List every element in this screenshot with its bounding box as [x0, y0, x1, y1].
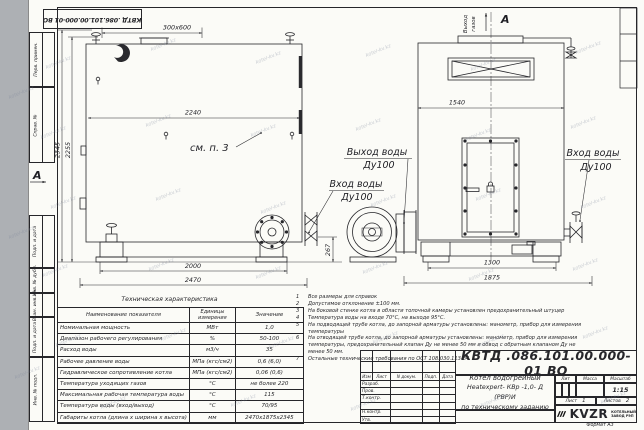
rev-col-doc: N докум. [391, 373, 423, 381]
empty-cell [391, 409, 423, 416]
spec-units: м3/ч [189, 345, 235, 356]
product-line2: Heatexpert- КВр -1,0- Д (РВР)И [456, 383, 554, 403]
empty-cell [423, 362, 440, 373]
margin-box: Справ. № [29, 87, 55, 163]
empty-cell [423, 381, 440, 388]
spec-units: мм [189, 412, 235, 423]
mass-cell [576, 383, 604, 397]
format-label: Формат А3 [558, 423, 642, 430]
note-item: 4Температура воды на входе 70°С, на выхо… [296, 315, 592, 322]
empty-cell [373, 362, 391, 373]
note-number: 1 [296, 294, 308, 301]
rev-row-label: Пров. [361, 388, 391, 395]
title-block-product: Котел водогрейный Heatexpert- КВр -1,0- … [455, 375, 555, 410]
spec-value: 2470х1875х2345 [235, 412, 303, 423]
company-logo: KVZR КОТЕЛЬНЫЙ ЗАВОД РЭП [555, 405, 637, 423]
lit-header: Лит [555, 375, 576, 383]
note-text: На подводящей трубе котла, до запорной а… [308, 322, 592, 336]
note-text: Все размеры для справок [308, 294, 592, 301]
empty-cell [361, 351, 373, 362]
margin-box: Подп. и дата [29, 215, 55, 268]
spec-units: °С [189, 390, 235, 401]
empty-cell [391, 416, 423, 423]
note-item: 5На подводящей трубе котла, до запорной … [296, 322, 592, 336]
kvzr-logo-icon [556, 407, 567, 421]
sheets-label: Листов [604, 399, 621, 404]
logo-sub2: ЗАВОД РЭП [611, 414, 634, 418]
scale-header: Масштаб [604, 375, 637, 383]
lit-cell [569, 383, 576, 397]
margin-box: Инв. № подл. [29, 357, 55, 422]
spec-value: не более 220 [235, 378, 303, 389]
empty-cell [423, 409, 440, 416]
lit-cell [562, 383, 569, 397]
empty-cell [391, 362, 423, 373]
spec-value: 115 [235, 390, 303, 401]
logo-text: KVZR [570, 407, 609, 421]
rev-col-data: Дата [440, 373, 456, 381]
spec-value: 1,0 [235, 323, 303, 334]
spec-units: % [189, 334, 235, 345]
rev-col-list: Лист [373, 373, 391, 381]
spec-units: МПа (кгс/см2) [189, 367, 235, 378]
margin-box: Перв. примен. [29, 32, 55, 87]
note-text: На боковой стенке котла в области топочн… [308, 308, 592, 315]
spec-value: 0,06 (0,6) [235, 367, 303, 378]
rev-row-label: Т.контр. [361, 395, 391, 402]
empty-cell [391, 388, 423, 395]
empty-cell [440, 388, 456, 395]
scale-value: 1:15 [604, 383, 637, 397]
spec-value: 70/95 [235, 401, 303, 412]
empty-cell [440, 381, 456, 388]
note-text: Температура воды на входе 70°С, на выход… [308, 315, 592, 322]
empty-cell [440, 416, 456, 423]
spec-name: Рабочее давление воды [58, 356, 190, 367]
spec-name: Габариты котла (длина х ширина х высота) [58, 412, 190, 423]
empty-cell [361, 362, 373, 373]
margin-label: Подп. и дата [34, 321, 39, 352]
empty-cell [455, 410, 555, 423]
empty-cell [423, 395, 440, 402]
sheet-cell: Лист 1 [555, 397, 596, 405]
top-doc-number: КВТД .086.101.00.000-01 ВО [43, 16, 141, 23]
empty-cell [423, 388, 440, 395]
revision-table: Изм Лист N докум. Подп. Дата Разраб. Про… [360, 350, 456, 424]
margin-label: Перв. примен. [34, 42, 39, 77]
empty-cell [423, 416, 440, 423]
mass-header: Масса [576, 375, 604, 383]
empty-cell [423, 402, 440, 409]
spec-name: Температура уходящих газов [58, 378, 190, 389]
margin-label: Справ. № [34, 114, 39, 136]
spec-value: 50-100 [235, 334, 303, 345]
lit-cell [555, 383, 562, 397]
empty-cell [440, 362, 456, 373]
empty-cell [440, 402, 456, 409]
margin-label: Подп. и дата [34, 226, 39, 257]
title-block-doc-number: КВТД .086.101.00.000-01 ВО [455, 350, 637, 375]
spec-table-title: Техническая характеристика [57, 296, 282, 303]
top-doc-number-box: КВТД .086.101.00.000-01 ВО [43, 9, 142, 29]
spec-name: Максимальная рабочая температура воды [58, 390, 190, 401]
empty-cell [373, 351, 391, 362]
rev-row-label: Разраб. [361, 381, 391, 388]
spec-table: Наименование показателя Единицы измерени… [57, 307, 304, 424]
drawing-sheet: 300x600 2345 2255 2240 2000 2470 267 154… [0, 0, 644, 430]
spec-header-name: Наименование показателя [58, 308, 190, 323]
note-item: 2Допустимое отклонение ±100 мм. [296, 301, 592, 308]
empty-cell [440, 351, 456, 362]
spec-value: 0,6 (6,0) [235, 356, 303, 367]
sheet-label: Лист [565, 399, 577, 404]
rev-row-label: Н.контр. [361, 409, 391, 416]
spec-name: Номинальная мощность [58, 323, 190, 334]
spec-header-units: Единицы измерения [189, 308, 235, 323]
empty-cell [391, 395, 423, 402]
rev-col-izm: Изм [361, 373, 373, 381]
empty-cell [391, 351, 423, 362]
spec-units: °С [189, 401, 235, 412]
margin-box: Взам. инв. № [29, 293, 55, 317]
rev-row-label [361, 402, 391, 409]
empty-cell [423, 351, 440, 362]
spec-name: Температура воды (вход/выход) [58, 401, 190, 412]
empty-cell [440, 409, 456, 416]
spec-units: МПа (кгс/см2) [189, 356, 235, 367]
note-text: Допустимое отклонение ±100 мм. [308, 301, 592, 308]
sheets-cell: Листов 2 [596, 397, 637, 405]
spec-name: Гидравлическое сопротивление котла [58, 367, 190, 378]
note-item: 1Все размеры для справок [296, 294, 592, 301]
margin-label: Инв. № подл. [34, 374, 39, 406]
spec-value: 35 [235, 345, 303, 356]
logo-subtitle: КОТЕЛЬНЫЙ ЗАВОД РЭП [611, 410, 636, 419]
section-label-margin: А [32, 169, 42, 182]
margin-label: Взам. инв. № [34, 289, 39, 320]
sheet-value: 1 [582, 398, 585, 404]
product-line1: Котел водогрейный [469, 373, 540, 384]
sheets-value: 2 [626, 398, 629, 404]
empty-cell [391, 381, 423, 388]
margin-box: Подп. и дата [29, 317, 55, 357]
spec-header-value: Значение [235, 308, 303, 323]
rev-row-label: Утв. [361, 416, 391, 423]
spec-units: МВт [189, 323, 235, 334]
empty-cell [440, 395, 456, 402]
spec-name: Расход воды [58, 345, 190, 356]
spec-units: °С [189, 378, 235, 389]
spec-name: Диапазон рабочего регулирования [58, 334, 190, 345]
rev-col-podp: Подп. [423, 373, 440, 381]
note-item: 3На боковой стенке котла в области топоч… [296, 308, 592, 315]
empty-cell [391, 402, 423, 409]
